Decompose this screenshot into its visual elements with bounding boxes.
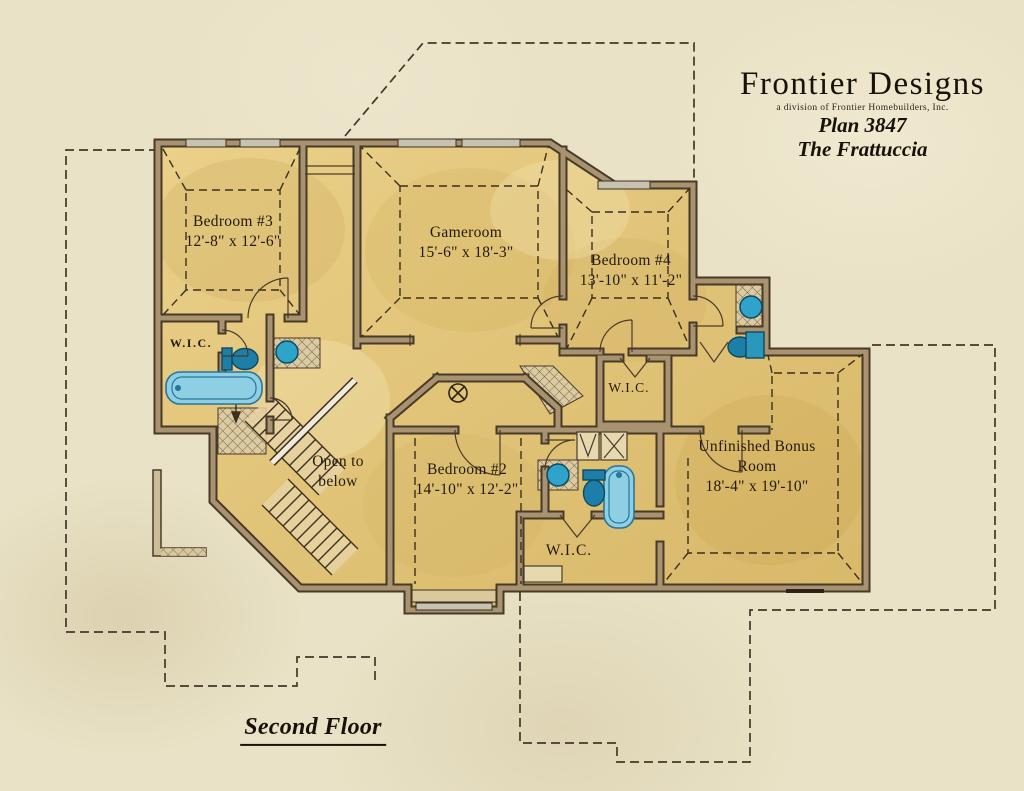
room-dims: 15'-6" x 18'-3" [418,243,513,263]
linen-closets [577,432,627,460]
toilet-icon-left [222,348,258,370]
room-dims: 13'-10" x 11'-2" [580,271,683,291]
room-name: Bedroom #2 [415,460,518,480]
deck-step-line [786,589,824,593]
room-name: Bedroom #3 [185,212,280,232]
wic-label-bedroom-4: W.I.C. [608,379,649,397]
room-dims: 18'-4" x 19'-10" [695,477,819,497]
floor-title: Second Floor [240,712,386,746]
room-name: Gameroom [418,223,513,243]
brand-tagline: a division of Frontier Homebuilders, Inc… [705,103,1020,113]
wic-label-bedroom-2: W.I.C. [546,541,592,561]
open-to-below-label: Open to below [298,452,378,492]
floorplan-page: Frontier Designs a division of Frontier … [0,0,1024,791]
wic-label-left: W.I.C. [170,336,212,352]
title-block: Frontier Designs a division of Frontier … [705,68,1020,161]
room-label-bedroom-2: Bedroom #2 14'-10" x 12'-2" [415,460,518,500]
room-label-gameroom: Gameroom 15'-6" x 18'-3" [418,223,513,263]
toilet-icon-center [583,470,605,506]
bathtub-icon-right [604,466,634,528]
room-label-bonus-room: Unfinished Bonus Room 18'-4" x 19'-10" [695,437,819,497]
room-dims: 14'-10" x 12'-2" [415,480,518,500]
porch-wall-below [153,470,206,556]
shower-icon [746,332,764,358]
plan-name: The Frattuccia [705,137,1020,161]
room-label-bedroom-4: Bedroom #4 13'-10" x 11'-2" [580,251,683,291]
room-dims: 12'-8" x 12'-6" [185,232,280,252]
room-name: Bedroom #4 [580,251,683,271]
room-label-bedroom-3: Bedroom #3 12'-8" x 12'-6" [185,212,280,252]
plan-number: Plan 3847 [705,113,1020,137]
brand-name: Frontier Designs [705,68,1020,101]
bathtub-icon-left [166,372,262,404]
room-name: Unfinished Bonus Room [695,437,819,477]
